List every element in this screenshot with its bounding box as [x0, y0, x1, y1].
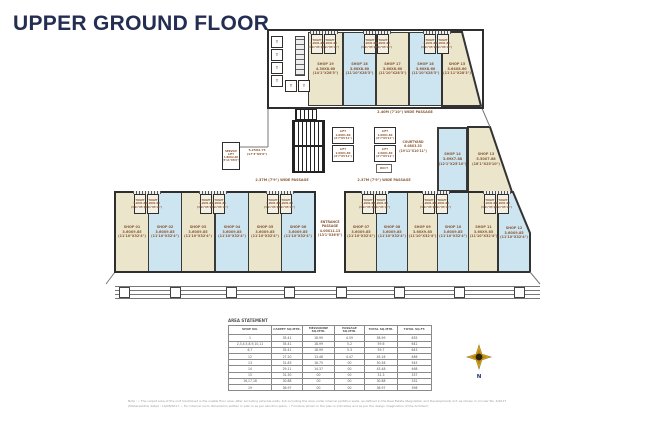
label-line: (19'11"X10'11") — [394, 149, 432, 153]
shop-label: SHOP 093.60X9.85(11'10"X32'4") — [407, 192, 438, 272]
label-line: (11'10"X32'4") — [218, 234, 246, 239]
service-lift-box: SERVICELIFT1.80X2.60(5'11"X8'6") — [222, 142, 240, 170]
shop-label: SHOP 023.60X9.85(11'10"X32'4") — [148, 192, 182, 272]
shop-label: SHOP 073.60X9.85(11'10"X32'4") — [345, 192, 377, 272]
north-label: N — [464, 374, 494, 380]
label-line: (11'10"X32'4") — [409, 234, 437, 239]
label-line: (13'1"X36'6") — [314, 233, 346, 237]
table-cell: 398 — [398, 384, 432, 390]
table-cell: 19 — [229, 384, 272, 390]
label-line: (11'10"X32'4") — [251, 234, 279, 239]
lift-box: LIFT2.00X1.80(6'7"X5'11") — [332, 127, 354, 144]
toilet-room: T — [271, 75, 283, 87]
label-line: (17'3"X9'0") — [240, 152, 274, 156]
shop-label: SHOP 113.60X9.85(11'10"X32'4") — [468, 192, 499, 272]
table-header-cell: CARPET SQ.MTR. — [272, 326, 303, 335]
pavement-post — [119, 287, 130, 298]
table-header-cell: TOTAL SQ.MTR. — [365, 326, 398, 335]
pavement-post — [394, 287, 405, 298]
courtyard-label: COURTYARD6.08X3.33(19'11"X10'11") — [394, 140, 432, 153]
table-cell: 00 — [303, 384, 335, 390]
passage-left-label: 2.37M (7'9") WIDE PASSAGE — [246, 178, 318, 183]
label-line: (11'10"X32'4") — [284, 234, 312, 239]
area-statement-table: SHOP NO.CARPET SQ.MTR.MEZZANINE SQ.MTR.P… — [228, 325, 432, 391]
label-line: (6'7"X5'11") — [376, 155, 394, 158]
boundary-line — [106, 272, 115, 284]
lift-box: LIFT2.00X1.80(6'7"X5'11") — [374, 127, 396, 144]
pavement-post — [336, 287, 347, 298]
shop-label: SHOP 143.69X7.88(12'1"X25'10") — [437, 127, 468, 192]
label-line: (14'1"X28'3") — [313, 71, 338, 76]
pavement-post — [514, 287, 525, 298]
shop-label: SHOP 173.60X8.60(11'10"X28'3") — [376, 32, 409, 106]
floor-plan-page: UPPER GROUND FLOOR 2.40M (7'10") WIDE PA… — [0, 0, 648, 424]
label-line: (11'11"X28'3") — [443, 71, 471, 76]
label-line: (6'7"X5'11") — [376, 137, 394, 140]
table-header-cell: MEZZANINE SQ.MTR. — [303, 326, 335, 335]
table-cell: 36.97 — [272, 384, 303, 390]
compass-icon — [464, 342, 494, 372]
label-line: (6'7"X5'11") — [334, 155, 352, 158]
table-header-cell: PASSAGE SQ.MTR. — [335, 326, 365, 335]
label-line: (11'10"X32'4") — [184, 234, 212, 239]
label-line: (11'10"X28'3") — [379, 71, 407, 76]
shop-label: SHOP 063.60X9.85(11'10"X32'4") — [281, 192, 315, 272]
table-cell: 36.97 — [365, 384, 398, 390]
boundary-line — [481, 106, 490, 127]
stair-dim-label: 5.25X2.75(17'3"X9'0") — [240, 148, 274, 156]
lift-box: LIFT2.00X1.80(6'7"X5'11") — [374, 145, 396, 162]
label-line: (5'11"X8'6") — [222, 159, 239, 162]
shop-label: SHOP 043.60X9.85(11'10"X32'4") — [215, 192, 249, 272]
label-line: (12'1"X25'10") — [439, 162, 467, 167]
toilet-room: T — [285, 80, 297, 92]
pavement-post — [454, 287, 465, 298]
passage-right-label: 2.37M (7'9") WIDE PASSAGE — [346, 178, 422, 183]
shop-label: SHOP 135.50X7.88(18'1"X25'10") — [468, 127, 504, 192]
shop-label: SHOP 163.60X8.60(11'10"X28'3") — [409, 32, 442, 106]
table-cell: 00 — [335, 384, 365, 390]
shop-label: SHOP 153.64X8.60(11'11"X28'3") — [442, 32, 472, 106]
boundary-line — [530, 272, 540, 284]
label-line: (11'10"X32'4") — [378, 234, 406, 239]
area-statement-title: AREA STATEMENT — [228, 318, 432, 323]
footnote: Note : • The carpet area of the unit men… — [128, 399, 528, 408]
label-line: (11'10"X32'4") — [500, 235, 528, 240]
shop-label: SHOP 194.30X8.60(14'1"X28'3") — [308, 32, 343, 106]
pavement-post — [226, 287, 237, 298]
lift-box: LIFT2.00X1.80(6'7"X5'11") — [332, 145, 354, 162]
toilet-room: T — [271, 36, 283, 48]
shop-label: SHOP 083.60X9.85(11'10"X32'4") — [376, 192, 408, 272]
label-line: (11'10"X32'4") — [439, 234, 467, 239]
label-line: (11'10"X28'3") — [412, 71, 440, 76]
shop-label: SHOP 033.60X9.85(11'10"X32'4") — [181, 192, 215, 272]
label-line: (11'10"X32'4") — [151, 234, 179, 239]
passage-top-label: 2.40M (7'10") WIDE PASSAGE — [360, 110, 450, 115]
table-header-cell: SHOP NO. — [229, 326, 272, 335]
shop-label: SHOP 053.60X9.85(11'10"X32'4") — [248, 192, 282, 272]
label-line: (11'10"X28'3") — [346, 71, 374, 76]
table-header-cell: TOTAL SQ.FT. — [398, 326, 432, 335]
label-line: (11'10"X32'4") — [118, 234, 146, 239]
entrance-passage-label: ENTRANCEPASSAGE4.00X11.13(13'1"X36'6") — [314, 220, 346, 238]
table-header-row: SHOP NO.CARPET SQ.MTR.MEZZANINE SQ.MTR.P… — [229, 326, 432, 335]
table-row: 1936.97000036.97398 — [229, 384, 432, 390]
shop-label: SHOP 103.60X9.85(11'10"X32'4") — [437, 192, 469, 272]
toilet-room: T — [271, 62, 283, 74]
label-line: (11'10"X32'4") — [470, 234, 498, 239]
pavement-post — [284, 287, 295, 298]
label-line: (11'10"X32'4") — [347, 234, 375, 239]
pavement-post — [170, 287, 181, 298]
shop-label: SHOP 183.60X8.60(11'10"X28'3") — [343, 32, 376, 106]
duct-shaft — [295, 36, 305, 76]
toilet-room: T — [271, 49, 283, 61]
label-line: (18'1"X25'10") — [472, 162, 500, 167]
duct-box: DUCT — [376, 164, 392, 173]
pavement-line — [115, 298, 540, 299]
shop-label: SHOP 013.60X9.85(11'10"X32'4") — [115, 192, 149, 272]
stair-upper-flight — [295, 109, 317, 120]
area-statement: AREA STATEMENT SHOP NO.CARPET SQ.MTR.MEZ… — [228, 318, 432, 391]
shop-label: SHOP 123.60X9.85(11'10"X32'4") — [498, 194, 530, 272]
stair-landing-line — [292, 145, 325, 147]
label-line: (6'7"X5'11") — [334, 137, 352, 140]
